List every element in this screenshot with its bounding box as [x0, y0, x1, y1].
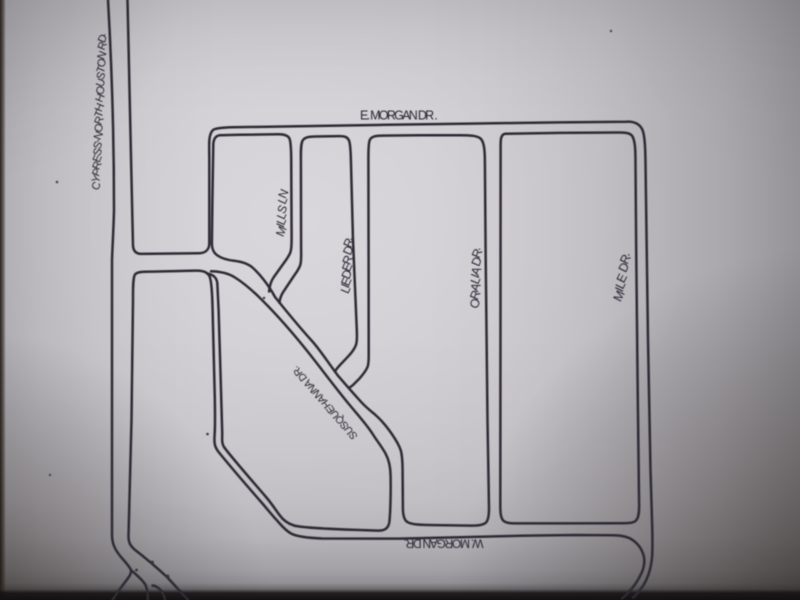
svg-text:ORALIA DR.: ORALIA DR.	[467, 244, 486, 311]
svg-text:CYPRESS-NORTH HOUSTON RD.: CYPRESS-NORTH HOUSTON RD.	[90, 30, 111, 192]
svg-text:MILE DR.: MILE DR.	[610, 249, 635, 305]
svg-text:E. MORGAN DR .: E. MORGAN DR .	[360, 109, 438, 123]
svg-text:W. MORGAN DR.: W. MORGAN DR.	[404, 537, 484, 551]
svg-text:MILLS LN: MILLS LN	[273, 187, 293, 239]
